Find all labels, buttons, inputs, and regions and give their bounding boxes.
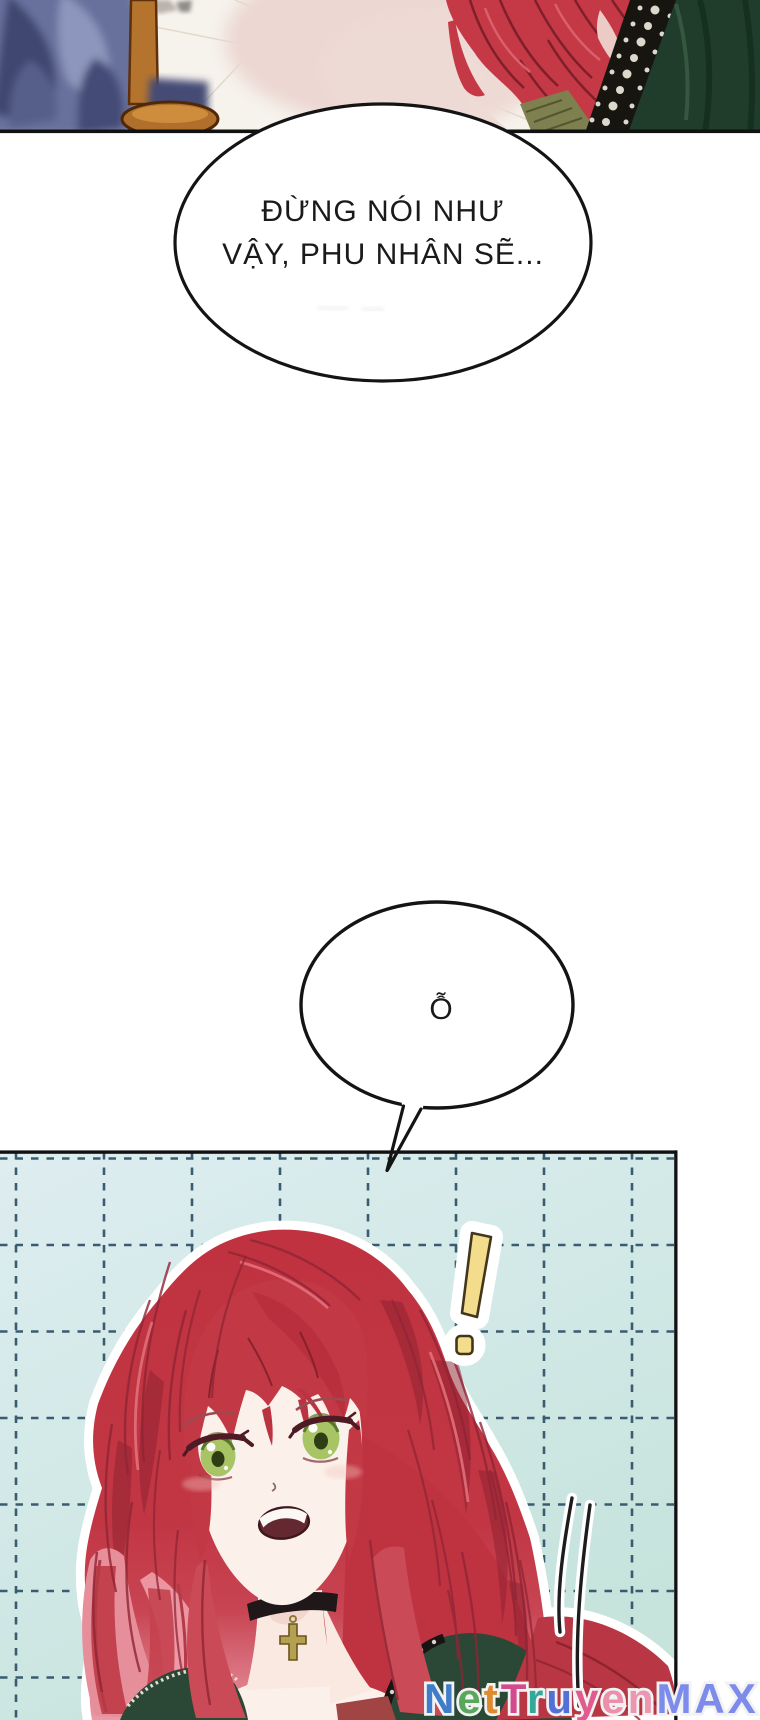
svg-text:NetTruyenMAX: NetTruyenMAX — [424, 1675, 759, 1720]
svg-text:VẬY, PHU NHÂN SẼ...: VẬY, PHU NHÂN SẼ... — [222, 237, 544, 271]
svg-text:Ỗ: Ỗ — [429, 992, 452, 1026]
svg-text:ĐỪNG NÓI NHƯ: ĐỪNG NÓI NHƯ — [261, 195, 504, 228]
